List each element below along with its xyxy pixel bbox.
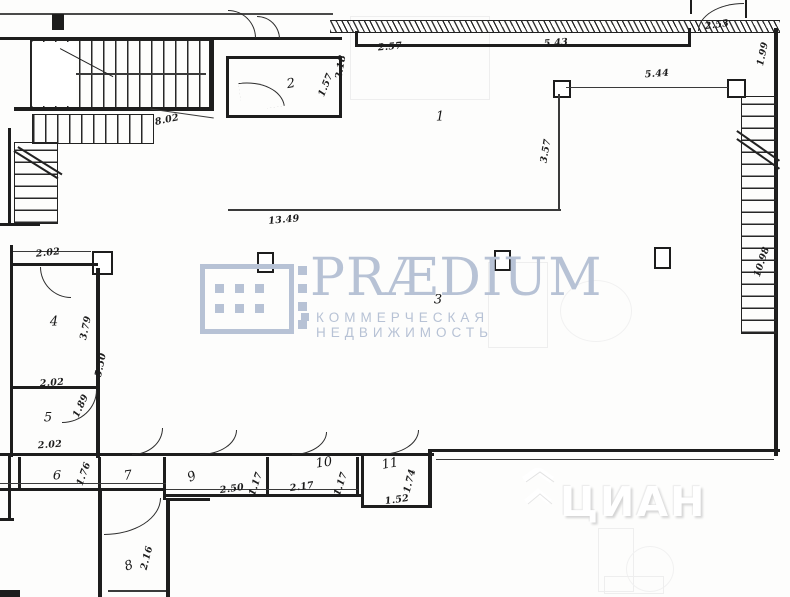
door-arc xyxy=(257,16,280,39)
dimension-label: 13.49 xyxy=(268,213,300,227)
cian-logo-icon xyxy=(522,468,558,528)
praedium-tagline-bullet xyxy=(301,313,309,321)
door-arc xyxy=(380,430,419,455)
stair-landing-line xyxy=(76,73,206,75)
wall xyxy=(18,457,21,490)
dimension-label: 2.57 xyxy=(377,40,402,53)
column xyxy=(654,247,671,269)
wall-inner-line xyxy=(108,590,166,592)
staircase-right xyxy=(741,96,777,334)
room-number-label: 3 xyxy=(434,293,442,308)
dimension-label: 2.02 xyxy=(37,439,62,452)
wall xyxy=(745,0,747,18)
room-number-label: 5 xyxy=(44,411,52,426)
dimension-label: 8.02 xyxy=(154,112,180,128)
wall xyxy=(355,44,691,47)
wall-inner-line xyxy=(436,459,774,460)
dimension-label: 3.57 xyxy=(538,138,553,164)
cian-logo-text: ЦИАН xyxy=(560,478,706,526)
door-arc xyxy=(132,428,163,455)
wall xyxy=(428,449,432,508)
dimension-label: 5.43 xyxy=(543,37,568,50)
floor-plan-canvas: PRÆDIUM КОММЕРЧЕСКАЯ НЕДВИЖИМОСТЬ ЦИАН 1… xyxy=(0,0,790,597)
door-arc xyxy=(40,267,71,298)
dimension-label: 5.44 xyxy=(644,68,669,81)
wall xyxy=(688,28,691,47)
watermark-ghost-building xyxy=(604,576,664,594)
room-number-label: 8 xyxy=(123,558,136,575)
wall xyxy=(0,13,333,15)
room-number-label: 9 xyxy=(185,468,199,485)
room-number-label: 11 xyxy=(381,455,400,473)
praedium-logo-icon xyxy=(200,264,294,334)
stair-landing xyxy=(32,42,76,106)
dimension-label: 3.79 xyxy=(78,315,94,341)
dimension-label: 2.16 xyxy=(139,545,156,571)
exterior-wall-left xyxy=(10,245,13,457)
column xyxy=(553,80,571,98)
dimension-label: 1.99 xyxy=(755,41,771,67)
wall xyxy=(430,449,780,452)
room-number-label: 4 xyxy=(50,315,58,330)
exterior-wall-left xyxy=(8,128,11,226)
dimension-label: 2.02 xyxy=(35,246,60,259)
wall xyxy=(0,453,434,456)
wall xyxy=(0,488,166,491)
wall xyxy=(355,31,358,46)
wall xyxy=(163,494,361,497)
wall xyxy=(166,498,210,501)
wall xyxy=(166,498,170,597)
room-number-label: 6 xyxy=(53,469,61,484)
wall-inner-line xyxy=(166,489,358,490)
wall xyxy=(0,223,40,226)
door-arc xyxy=(200,430,237,455)
wall xyxy=(10,263,98,266)
staircase-lower-run xyxy=(32,114,154,144)
dimension-line xyxy=(566,87,728,88)
watermark-ghost-curve xyxy=(560,280,632,342)
room-number-label: 7 xyxy=(123,468,133,484)
wall xyxy=(98,457,101,492)
column xyxy=(494,250,511,271)
wall xyxy=(98,490,102,597)
wall xyxy=(210,37,214,111)
dimension-label: 1.74 xyxy=(402,468,419,494)
wall-pier xyxy=(52,14,64,30)
wall xyxy=(0,518,14,521)
wall xyxy=(690,0,692,14)
room-number-label: 1 xyxy=(436,110,444,125)
room-number-label: 10 xyxy=(315,454,333,471)
wall xyxy=(14,107,212,111)
door-arc xyxy=(292,432,327,455)
column xyxy=(257,252,274,273)
dimension-line xyxy=(228,209,561,211)
dimension-label: 2.17 xyxy=(289,480,315,494)
wall xyxy=(361,455,364,508)
praedium-logo-text: PRÆDIUM xyxy=(310,252,603,304)
dimension-line xyxy=(558,94,560,210)
door-arc xyxy=(104,498,161,535)
wall xyxy=(0,590,20,597)
watermark-ghost-rect xyxy=(488,262,548,348)
dimension-label: 2.02 xyxy=(39,377,64,390)
